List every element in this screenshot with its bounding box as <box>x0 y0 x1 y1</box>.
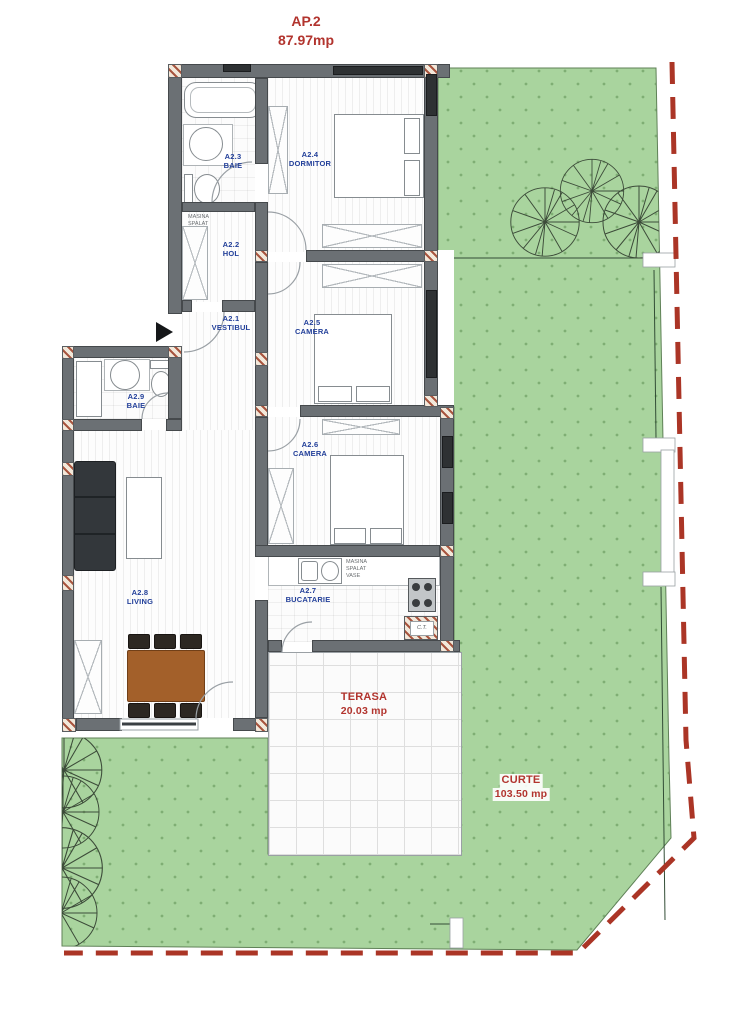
room-label-a2-2: A2.2HOL <box>223 240 240 258</box>
plan-title: AP.2 87.97mp <box>278 12 334 50</box>
room-label-a2-8: A2.8LIVING <box>127 588 153 606</box>
room-label-a2-1: A2.1VESTIBUL <box>212 314 251 332</box>
terrace-label: TERASA 20.03 mp <box>341 691 388 718</box>
room-label-a2-3: A2.3BAIE <box>224 152 243 170</box>
room-label-a2-4: A2.4DORMITOR <box>289 150 331 168</box>
door-layer <box>0 0 748 1023</box>
yard-label: CURTE 103.50 mp <box>493 774 550 801</box>
floor-plan: AP.2 87.97mp <box>0 0 748 1023</box>
washer-label: MASINA SPALAT <box>188 214 209 228</box>
room-label-a2-6: A2.6CAMERA <box>293 440 327 458</box>
apartment-code: AP.2 <box>278 12 334 31</box>
room-label-a2-5: A2.5CAMERA <box>295 318 329 336</box>
dishwasher-label: MASINA SPALAT VASE <box>346 559 367 580</box>
room-label-a2-9: A2.9BAIE <box>127 392 146 410</box>
apartment-area: 87.97mp <box>278 31 334 50</box>
room-label-a2-7: A2.7BUCATARIE <box>286 586 331 604</box>
entrance-arrow-icon <box>156 322 173 342</box>
